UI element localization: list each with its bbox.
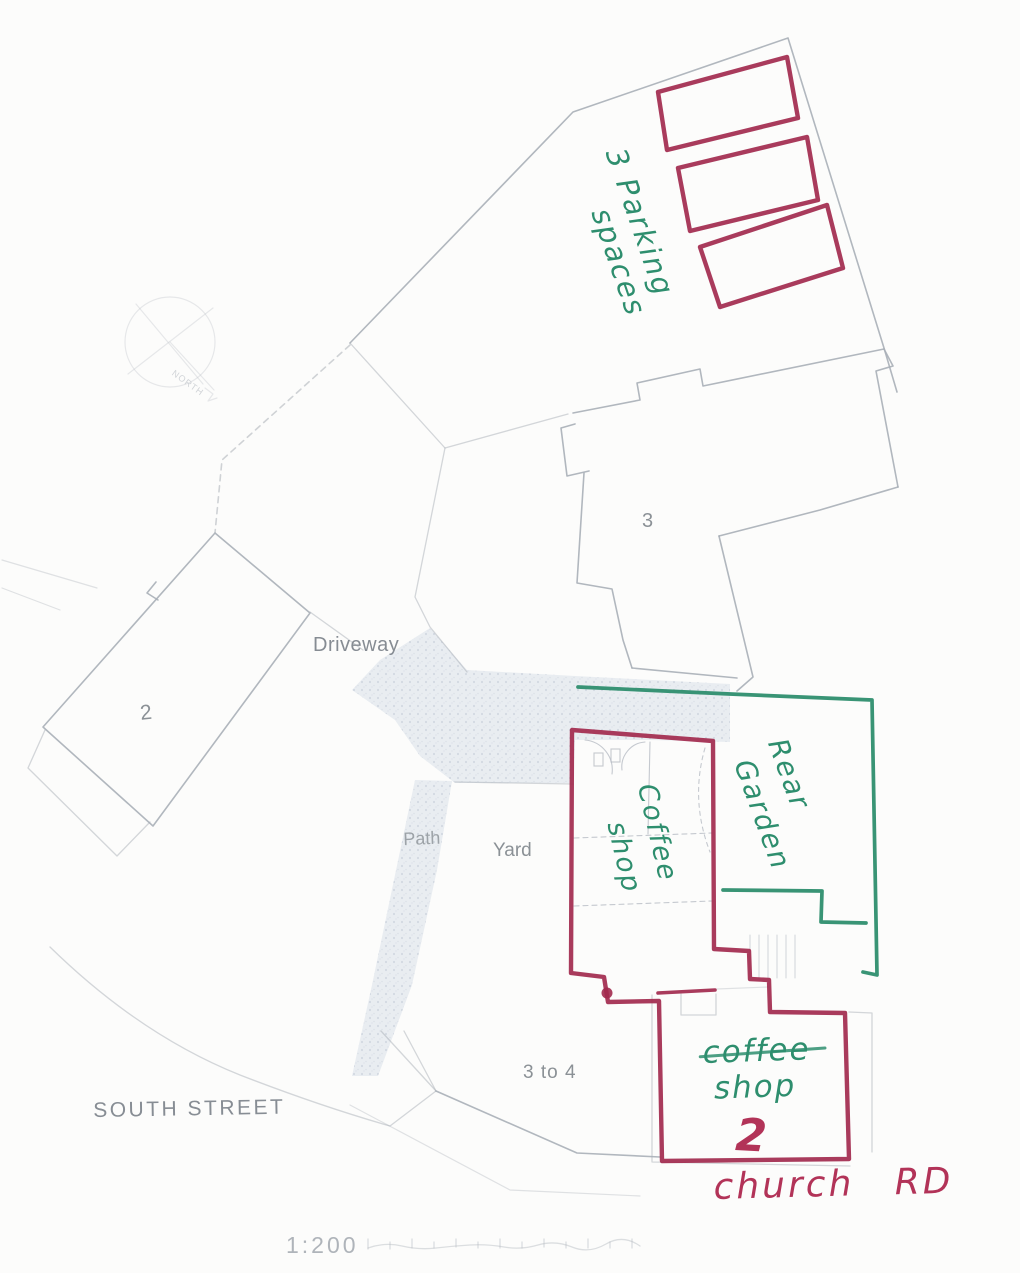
footpath-shading xyxy=(352,780,452,1076)
scale-label: 1:200 xyxy=(286,1232,359,1259)
parking-space-3 xyxy=(700,205,843,307)
yard-label: Yard xyxy=(493,840,532,862)
driveway-courtyard-shading xyxy=(352,628,730,783)
parking-spaces-red-outlines xyxy=(658,57,843,307)
coffee-shop-lower-line1: coffee xyxy=(702,1032,811,1071)
path-label: Path xyxy=(403,828,441,850)
site-plan-drawing xyxy=(0,0,1020,1273)
church-road-annotation: church RD xyxy=(713,1161,954,1208)
three-to-four-label: 3 to 4 xyxy=(523,1062,577,1084)
parking-space-1 xyxy=(658,57,798,150)
south-street-label: SOUTH STREET xyxy=(93,1096,286,1123)
driveway-label: Driveway xyxy=(313,634,399,657)
scale-bar xyxy=(368,1239,640,1250)
building-2-label: 2 xyxy=(139,701,153,726)
building-3-label: 3 xyxy=(642,510,653,533)
coffee-shop-annotation-lower: coffee shop xyxy=(702,1032,812,1107)
scanned-site-plan: Driveway 2 3 Path Yard 3 to 4 SOUTH STRE… xyxy=(0,0,1020,1273)
north-symbol xyxy=(125,297,217,401)
coffee-shop-lower-line2: shop xyxy=(713,1068,812,1107)
shop-number-annotation: 2 xyxy=(734,1108,768,1163)
